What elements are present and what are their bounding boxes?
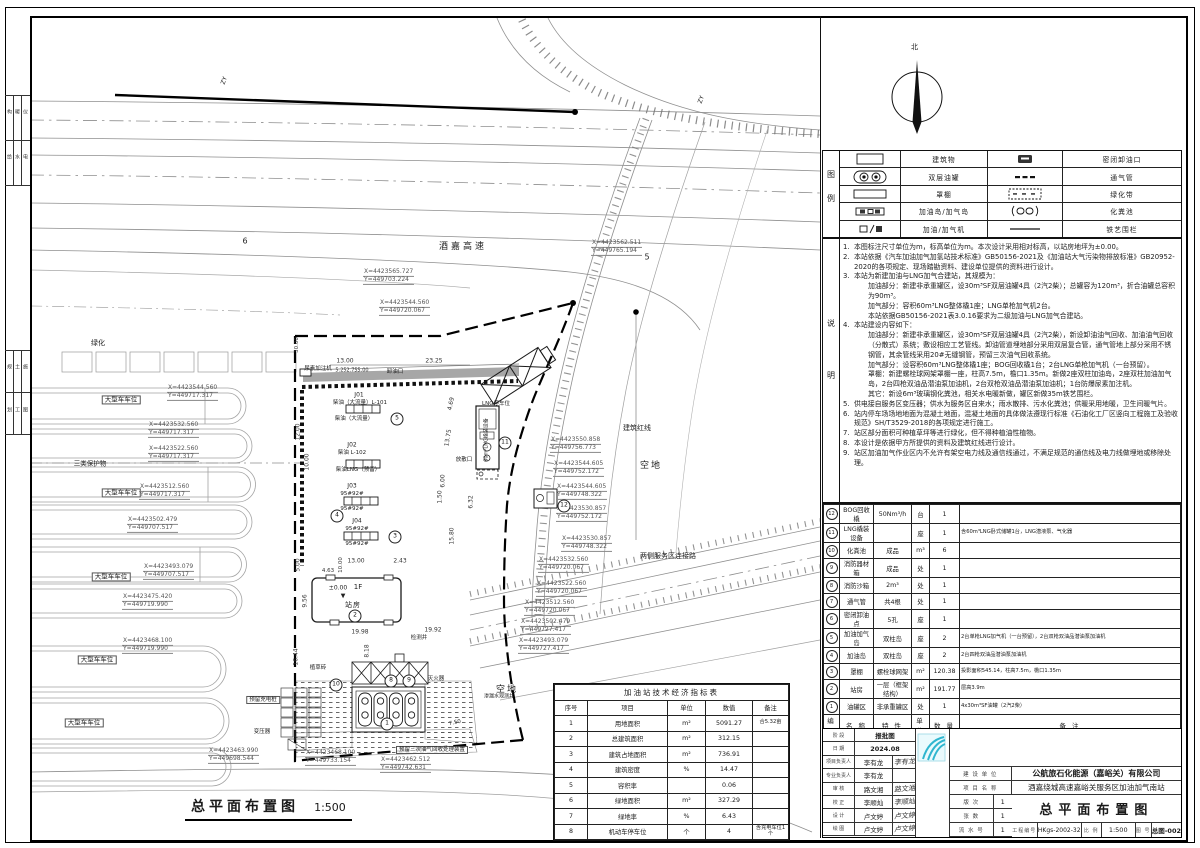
row-number: 1 (824, 699, 840, 715)
note-item: 6.站内停车场场地地面为混凝土地面，混凝土地面的具体做法遵现行标准《石油化工厂区… (843, 410, 1178, 430)
legend-label: 铁艺围栏 (1063, 221, 1181, 237)
building-cell: 座 (912, 610, 930, 629)
econ-cell: 4 (706, 824, 753, 840)
building-cell: 站房 (840, 680, 874, 699)
row-number: 12 (824, 505, 840, 524)
legend-label: 绿化带 (1063, 186, 1181, 202)
building-symbol-icon (840, 151, 901, 167)
panel-divider (820, 16, 821, 838)
personnel-row: 项目负责人李有龙李有龙 (823, 756, 915, 769)
note-item: 其它：新设6m³玻璃钢化粪池，相关水电暖新做，罐区新做35m铁艺围栏。 (843, 390, 1178, 400)
note-text: 加油部分：新建非承重罐区，设30m³SF双层油罐4具（2汽2柴），新设卸油油气回… (868, 331, 1178, 360)
legend-label: 双层油罐 (901, 168, 988, 184)
legend-side-text: 图例 (826, 170, 837, 218)
building-cell: 1 (930, 699, 960, 715)
econ-row: 1用地面积m²5091.27合5.32亩 (555, 716, 789, 732)
econ-cell: 建筑密度 (588, 762, 668, 778)
note-number: 9. (843, 449, 854, 469)
econ-cell: m² (668, 731, 706, 747)
note-number: 6. (843, 410, 854, 430)
econ-cell: 合5.32亩 (753, 716, 789, 732)
econ-row: 8机动车停车位个4含充电车位1个 (555, 824, 789, 840)
personnel-role-label: 专业负责人 (823, 769, 855, 781)
note-item: 加油部分：新建非承重罐区，设30m³SF双层油罐4具（2汽2柴）；总罐容为120… (843, 282, 1178, 302)
drawing-number-row: 工程编号HKgs-2002-32比 例1:500图 号总图-002 (1012, 823, 1181, 837)
margin-char: 暖 (15, 109, 20, 116)
binding-strip-line (5, 95, 30, 96)
personnel-name: 李有龙 (855, 769, 893, 781)
project-name: 酒嘉绕城高速嘉峪关服务区加油加气南站 (1012, 781, 1181, 794)
building-list-table: 12BOG回收橇50Nm³/h台111LNG橇装设备座1含60m³LNG卧式储罐… (823, 504, 1181, 752)
econ-header: 备注 (753, 700, 789, 716)
notes-side-text: 说明 (826, 319, 837, 423)
unload-symbol-icon (988, 151, 1063, 167)
building-cell: 5孔 (874, 610, 912, 629)
building-cell: 通气管 (840, 594, 874, 610)
note-number: 3. (843, 272, 854, 282)
building-cell: 双柱岛 (874, 648, 912, 664)
econ-cell (753, 778, 789, 794)
notes-lines: 1.本图标注尺寸单位为m，标高单位为m。本次设计采用相对标高，以站房地坪为±0.… (840, 239, 1181, 502)
econ-cell: % (668, 762, 706, 778)
building-cell: 共4根 (874, 594, 912, 610)
margin-char: 给 (7, 154, 12, 161)
personnel-value: 报批图 (855, 729, 915, 741)
building-row: 6密闭卸油点5孔座1 (824, 610, 1181, 629)
econ-header: 项目 (588, 700, 668, 716)
econ-cell: 3 (555, 747, 588, 763)
econ-cell: 5 (555, 778, 588, 794)
econ-cell: m² (668, 716, 706, 732)
building-cell: 层高3.9m (960, 680, 1181, 699)
building-cell: 螺栓球网架 (874, 664, 912, 680)
personnel-row: 设 计卢文婷卢文婷 (823, 809, 915, 822)
building-cell: 191.77 (930, 680, 960, 699)
row-number: 10 (824, 543, 840, 559)
note-number: 1. (843, 243, 854, 253)
titleblock-lower: 建 设 单 位项 目 名 称版 次1张 数1流 水 号1公航旅石化能源（嘉峪关）… (950, 767, 1181, 837)
building-cell (960, 594, 1181, 610)
row-number: 7 (824, 594, 840, 610)
margin-char: 图 (23, 407, 28, 414)
econ-cell: 6.43 (706, 809, 753, 825)
titleblock-mid-row: 项 目 名 称 (950, 781, 1012, 795)
row-number: 8 (824, 578, 840, 594)
margin-char: 工 (15, 407, 20, 414)
binding-strip-line (5, 392, 30, 393)
econ-cell: 5091.27 (706, 716, 753, 732)
personnel-row: 阶 段报批图 (823, 729, 915, 742)
title-block: 阶 段报批图日 期2024.08项目负责人李有龙李有龙专业负责人李有龙审 核路文… (822, 728, 1182, 838)
titleblock-mid-row: 流 水 号1 (950, 823, 1012, 837)
building-cell: 成品 (874, 543, 912, 559)
personnel-role-label: 审 核 (823, 783, 855, 795)
scale-value: 1:500 (1102, 823, 1136, 837)
project-number: HKgs-2002-32 (1038, 823, 1082, 837)
titleblock-names: 公航旅石化能源（嘉峪关）有限公司酒嘉绕城高速嘉峪关服务区加油加气南站总平面布置图… (1012, 767, 1181, 837)
building-row: 8消防沙箱2m³处1 (824, 578, 1181, 594)
note-number (857, 390, 868, 400)
margin-char: 构 (7, 109, 12, 116)
econ-row: 6绿地面积m²327.29 (555, 793, 789, 809)
drawing-title: 总平面布置图 (1012, 795, 1181, 822)
econ-cell (753, 793, 789, 809)
personnel-signature: 路文湘 (893, 783, 915, 795)
building-row: 1油罐区非承重罐区处14x30m³SF油罐（2汽2柴） (824, 699, 1181, 715)
titleblock-mid-row: 版 次1 (950, 795, 1012, 809)
note-text: 加气部分：容积60m³LNG整体橇1座；LNG单枪加气机2台。 (868, 302, 1178, 312)
titleblock-mid-value: 1 (994, 795, 1012, 808)
note-text: 本站为新建加油与LNG加气合建站，其规模为： (854, 272, 1178, 282)
titleblock-mid-row: 张 数1 (950, 809, 1012, 823)
building-cell: 处 (912, 578, 930, 594)
building-row: 11LNG橇装设备座1含60m³LNG卧式储罐1台，LNG潜液泵、气化器 (824, 524, 1181, 543)
note-item: 9.站区加油加气作业区内不允许有架空电力线及通信线通过，不满足规范的通信线及电力… (843, 449, 1178, 469)
building-cell: 2m³ (874, 578, 912, 594)
building-cell: 1 (930, 524, 960, 543)
building-cell: 加油加气岛 (840, 629, 874, 648)
personnel-row: 校 正李顺灿李顺灿 (823, 796, 915, 809)
personnel-role-label: 日 期 (823, 742, 855, 754)
building-cell: 投影面积545.14，柱高7.5m，檐口1.35m (960, 664, 1181, 680)
building-cell: 2台四枪双油品潜油泵加油机 (960, 648, 1181, 664)
building-cell: 台 (912, 505, 930, 524)
fence-symbol-icon (988, 221, 1063, 237)
binding-strip-line (21, 95, 22, 185)
building-cell: LNG橇装设备 (840, 524, 874, 543)
econ-cell: 用地面积 (588, 716, 668, 732)
signature-text: 路文湘 (893, 783, 915, 794)
econ-cell (753, 809, 789, 825)
personnel-role-label: 阶 段 (823, 729, 855, 741)
note-text: 本站依据《汽车加油加气加氢站技术标准》GB50156-2021及《加油站大气污染… (854, 253, 1178, 273)
econ-cell: 4 (555, 762, 588, 778)
econ-cell: 绿地率 (588, 809, 668, 825)
econ-cell: 0.06 (706, 778, 753, 794)
signature-text: 卢文婷 (893, 810, 915, 821)
building-cell: 2台单枪LNG加气机（一台预留），2台双枪双油品潜油泵加油机 (960, 629, 1181, 648)
note-number (857, 361, 868, 371)
legend-label: 化粪池 (1063, 203, 1181, 219)
note-item: 5.供电接自服务区变压器；供水为服务区自来水；雨水散排、污水化粪池；供暖采用地暖… (843, 400, 1178, 410)
titleblock-mid-label: 项 目 名 称 (950, 781, 1012, 794)
economic-indicators-table: 加油站技术经济指标表序号项目单位数值备注1用地面积m²5091.27合5.32亩… (554, 684, 789, 840)
note-item: 罩棚：新建螺栓球网架罩棚一座，柱高7.5m，檐口1.35m。新做2座双柱加油岛，… (843, 370, 1178, 390)
personnel-name: 路文湘 (855, 783, 893, 795)
titleblock-right: 建 设 单 位项 目 名 称版 次1张 数1流 水 号1公航旅石化能源（嘉峪关）… (950, 729, 1181, 837)
figure-number: 总图-002 (1152, 823, 1181, 837)
binding-strip-line (21, 350, 22, 434)
legend-table: 图例 建筑物密闭卸油口双层油罐通气管罩棚绿化带加油岛/加气岛化粪池加油/加气机铁… (822, 150, 1182, 238)
note-number (857, 282, 868, 302)
north-label: 北 (911, 42, 918, 52)
note-text: 罩棚：新建螺栓球网架罩棚一座，柱高7.5m，檐口1.35m。新做2座双柱加油岛，… (868, 370, 1178, 390)
margin-char: 划 (7, 407, 12, 414)
legend-side-label: 图例 (823, 151, 840, 237)
building-list-panel: 12BOG回收橇50Nm³/h台111LNG橇装设备座1含60m³LNG卧式储罐… (822, 503, 1182, 728)
personnel-name: 李顺灿 (855, 796, 893, 808)
building-row: 2站房一层（框架结构）m²191.77层高3.9m (824, 680, 1181, 699)
building-cell: m³ (912, 543, 930, 559)
building-cell: 座 (912, 629, 930, 648)
econ-cell: 7 (555, 809, 588, 825)
building-cell (960, 543, 1181, 559)
signature-text: 卢文婷 (893, 823, 915, 834)
legend-rows: 建筑物密闭卸油口双层油罐通气管罩棚绿化带加油岛/加气岛化粪池加油/加气机铁艺围栏 (840, 151, 1181, 237)
note-item: 3.本站为新建加油与LNG加气合建站，其规模为： (843, 272, 1178, 282)
legend-row: 加油/加气机铁艺围栏 (840, 221, 1181, 237)
econ-row: 4建筑密度%14.47 (555, 762, 789, 778)
project-number-label: 工程编号 (1012, 823, 1038, 837)
personnel-row: 审 核路文湘路文湘 (823, 783, 915, 796)
green-symbol-icon (988, 186, 1063, 202)
building-cell: 处 (912, 559, 930, 578)
personnel-role-label: 校 正 (823, 796, 855, 808)
row-number: 9 (824, 559, 840, 578)
personnel-role-label: 绘 图 (823, 823, 855, 835)
econ-cell: m² (668, 747, 706, 763)
personnel-row: 日 期2024.08 (823, 742, 915, 755)
note-item: 7.站区部分面积可种植草坪等进行绿化，但不得种植油性植物。 (843, 429, 1178, 439)
building-cell: 4x30m³SF油罐（2汽2柴） (960, 699, 1181, 715)
building-cell: 一层（框架结构） (874, 680, 912, 699)
building-cell: m² (912, 664, 930, 680)
margin-char: 电 (23, 154, 28, 161)
econ-header: 单位 (668, 700, 706, 716)
note-number: 4. (843, 321, 854, 331)
note-text: 本图标注尺寸单位为m，标高单位为m。本次设计采用相对标高，以站房地坪为±0.00… (854, 243, 1178, 253)
building-cell: 处 (912, 594, 930, 610)
building-cell: 1 (930, 505, 960, 524)
note-number (857, 331, 868, 360)
building-cell: 1 (930, 610, 960, 629)
building-cell (960, 559, 1181, 578)
building-cell: 油罐区 (840, 699, 874, 715)
personnel-signature: 李有龙 (893, 756, 915, 768)
personnel-role-label: 项目负责人 (823, 756, 855, 768)
personnel-value: 2024.08 (855, 742, 915, 754)
building-cell: 2 (930, 648, 960, 664)
company-row: 公航旅石化能源（嘉峪关）有限公司 (1012, 767, 1181, 781)
building-row: 4加油岛双柱岛座22台四枪双油品潜油泵加油机 (824, 648, 1181, 664)
note-number: 5. (843, 400, 854, 410)
notes-side-label: 说明 (823, 239, 840, 502)
building-row: 10化粪池成品m³6 (824, 543, 1181, 559)
econ-cell: 含充电车位1个 (753, 824, 789, 840)
titleblock-mid-row: 建 设 单 位 (950, 767, 1012, 781)
building-row: 12BOG回收橇50Nm³/h台1 (824, 505, 1181, 524)
econ-cell (753, 762, 789, 778)
building-cell: BOG回收橇 (840, 505, 874, 524)
plan-scale: 1:500 (314, 801, 346, 814)
econ-cell: 容积率 (588, 778, 668, 794)
econ-cell: 14.47 (706, 762, 753, 778)
building-cell: 2 (930, 629, 960, 648)
legend-label: 通气管 (1063, 168, 1181, 184)
canopy-symbol-icon (840, 186, 901, 202)
personnel-name: 卢文婷 (855, 823, 893, 835)
building-cell: 座 (912, 524, 930, 543)
econ-cell: 1 (555, 716, 588, 732)
margin-char: 土 (15, 364, 20, 371)
building-cell: 消防沙箱 (840, 578, 874, 594)
note-text: 本站依据GB50156-2021表3.0.16要求为二级加油与LNG加气合建站。 (868, 312, 1178, 322)
personnel-row: 专业负责人李有龙 (823, 769, 915, 782)
building-cell: 双柱岛 (874, 629, 912, 648)
margin-char: 水 (15, 154, 20, 161)
dtank-symbol-icon (840, 168, 901, 184)
note-item: 1.本图标注尺寸单位为m，标高单位为m。本次设计采用相对标高，以站房地坪为±0.… (843, 243, 1178, 253)
building-cell: 加油岛 (840, 648, 874, 664)
note-number: 2. (843, 253, 854, 273)
note-text: 供电接自服务区变压器；供水为服务区自来水；雨水散排、污水化粪池；供暖采用地暖，卫… (854, 400, 1178, 410)
econ-cell: 个 (668, 824, 706, 840)
building-cell: 成品 (874, 559, 912, 578)
building-row: 3罩棚螺栓球网架m²120.38投影面积545.14，柱高7.5m，檐口1.35… (824, 664, 1181, 680)
note-item: 2.本站依据《汽车加油加气加氢站技术标准》GB50156-2021及《加油站大气… (843, 253, 1178, 273)
note-item: 本站依据GB50156-2021表3.0.16要求为二级加油与LNG加气合建站。 (843, 312, 1178, 322)
island-symbol-icon (840, 203, 901, 219)
titleblock-logo-cell (915, 729, 950, 837)
building-cell: 6 (930, 543, 960, 559)
note-number (857, 370, 868, 390)
personnel-name: 李有龙 (855, 756, 893, 768)
personnel-name: 卢文婷 (855, 809, 893, 821)
personnel-signature: 卢文婷 (893, 809, 915, 821)
econ-cell (753, 731, 789, 747)
econ-cell: 312.15 (706, 731, 753, 747)
building-cell: 1 (930, 594, 960, 610)
econ-cell: 736.91 (706, 747, 753, 763)
building-cell: 罩棚 (840, 664, 874, 680)
row-number: 6 (824, 610, 840, 629)
scale-label: 比 例 (1082, 823, 1102, 837)
building-cell: 消防器材箱 (840, 559, 874, 578)
building-cell: 120.38 (930, 664, 960, 680)
titleblock-mid-label: 流 水 号 (950, 823, 994, 836)
legend-label: 建筑物 (901, 151, 988, 167)
company-name: 公航旅石化能源（嘉峪关）有限公司 (1012, 767, 1181, 780)
note-text: 加气部分：设容积60m³LNG整体橇1座；BOG回收橇1台；2台LNG单枪加气机… (868, 361, 1178, 371)
econ-cell: m² (668, 793, 706, 809)
legend-row: 罩棚绿化带 (840, 186, 1181, 203)
note-item: 8.本设计是依据甲方所提供的资料及建筑红线进行设计。 (843, 439, 1178, 449)
row-number: 3 (824, 664, 840, 680)
personnel-signature: 李顺灿 (893, 796, 915, 808)
legend-label: 加油/加气机 (901, 221, 988, 237)
econ-cell: 机动车停车位 (588, 824, 668, 840)
econ-cell (753, 747, 789, 763)
note-number: 7. (843, 429, 854, 439)
signature-text: 李有龙 (893, 756, 915, 767)
binding-strip-line (5, 350, 30, 351)
econ-cell: 建筑占地面积 (588, 747, 668, 763)
econ-row: 7绿地率%6.43 (555, 809, 789, 825)
building-cell: 1 (930, 559, 960, 578)
econ-header: 序号 (555, 700, 588, 716)
building-cell (874, 524, 912, 543)
row-number: 5 (824, 629, 840, 648)
titleblock-blank (950, 729, 1181, 767)
note-text: 站内停车场场地地面为混凝土地面，混凝土地面的具体做法遵现行标准《石油化工厂区竖向… (854, 410, 1178, 430)
econ-table-title: 加油站技术经济指标表 (555, 685, 789, 701)
margin-char: 规 (7, 364, 12, 371)
personnel-row: 绘 图卢文婷卢文婷 (823, 823, 915, 836)
note-text: 其它：新设6m³玻璃钢化粪池，相关水电暖新做，罐区新做35m铁艺围栏。 (868, 390, 1178, 400)
note-text: 本站建设内容如下： (854, 321, 1178, 331)
building-cell (960, 610, 1181, 629)
note-text: 站区部分面积可种植草坪等进行绿化，但不得种植油性植物。 (854, 429, 1178, 439)
econ-header: 数值 (706, 700, 753, 716)
binding-strip-line (13, 95, 14, 185)
company-logo-icon (917, 732, 947, 768)
econ-row: 3建筑占地面积m²736.91 (555, 747, 789, 763)
plan-title-text: 总平面布置图 (191, 799, 299, 815)
note-item: 加油部分：新建非承重罐区，设30m³SF双层油罐4具（2汽2柴），新设卸油油气回… (843, 331, 1178, 360)
margin-char: 仪 (23, 109, 28, 116)
titleblock-mid: 建 设 单 位项 目 名 称版 次1张 数1流 水 号1 (950, 767, 1012, 837)
building-cell: 座 (912, 648, 930, 664)
note-item: 加气部分：设容积60m³LNG整体橇1座；BOG回收橇1台；2台LNG单枪加气机… (843, 361, 1178, 371)
titleblock-personnel: 阶 段报批图日 期2024.08项目负责人李有龙李有龙专业负责人李有龙审 核路文… (823, 729, 915, 837)
building-cell: 1 (930, 578, 960, 594)
building-cell (960, 578, 1181, 594)
econ-cell (668, 778, 706, 794)
personnel-signature: 卢文婷 (893, 823, 915, 835)
building-cell: 含60m³LNG卧式储罐1台，LNG潜液泵、气化器 (960, 524, 1181, 543)
building-row: 9消防器材箱成品处1 (824, 559, 1181, 578)
building-cell: 50Nm³/h (874, 505, 912, 524)
drawing-title-row: 总平面布置图 (1012, 795, 1181, 823)
legend-row: 加油岛/加气岛化粪池 (840, 203, 1181, 220)
econ-cell: 总建筑面积 (588, 731, 668, 747)
econ-cell: 327.29 (706, 793, 753, 809)
legend-row: 建筑物密闭卸油口 (840, 151, 1181, 168)
econ-row: 2总建筑面积m²312.15 (555, 731, 789, 747)
personnel-role-label: 设 计 (823, 809, 855, 821)
economic-indicators-panel: 加油站技术经济指标表序号项目单位数值备注1用地面积m²5091.27合5.32亩… (553, 683, 790, 841)
personnel-signature (893, 769, 915, 781)
notes-panel: 说明 1.本图标注尺寸单位为m，标高单位为m。本次设计采用相对标高，以站房地坪为… (822, 238, 1182, 503)
note-number: 8. (843, 439, 854, 449)
row-number: 2 (824, 680, 840, 699)
legend-row: 双层油罐通气管 (840, 168, 1181, 185)
project-row: 酒嘉绕城高速嘉峪关服务区加油加气南站 (1012, 781, 1181, 795)
titleblock-mid-value: 1 (994, 823, 1012, 836)
note-item: 加气部分：容积60m³LNG整体橇1座；LNG单枪加气机2台。 (843, 302, 1178, 312)
titleblock-mid-label: 建 设 单 位 (950, 767, 1012, 780)
binding-strip-line (5, 140, 30, 141)
row-number: 4 (824, 648, 840, 664)
building-cell: 化粪池 (840, 543, 874, 559)
econ-cell: 绿地面积 (588, 793, 668, 809)
building-cell: m² (912, 680, 930, 699)
note-item: 4.本站建设内容如下： (843, 321, 1178, 331)
note-number (857, 302, 868, 312)
note-text: 加油部分：新建非承重罐区，设30m³SF双层油罐4具（2汽2柴）；总罐容为120… (868, 282, 1178, 302)
binding-strip-line (5, 185, 30, 186)
vent-symbol-icon (988, 168, 1063, 184)
figure-number-label: 图 号 (1136, 823, 1152, 837)
econ-cell: 8 (555, 824, 588, 840)
note-number (857, 312, 868, 322)
econ-cell: 2 (555, 731, 588, 747)
signature-text: 李顺灿 (893, 796, 915, 807)
econ-cell: % (668, 809, 706, 825)
building-cell: 处 (912, 699, 930, 715)
titleblock-mid-value: 1 (994, 809, 1012, 822)
building-row: 5加油加气岛双柱岛座22台单枪LNG加气机（一台预留），2台双枪双油品潜油泵加油… (824, 629, 1181, 648)
